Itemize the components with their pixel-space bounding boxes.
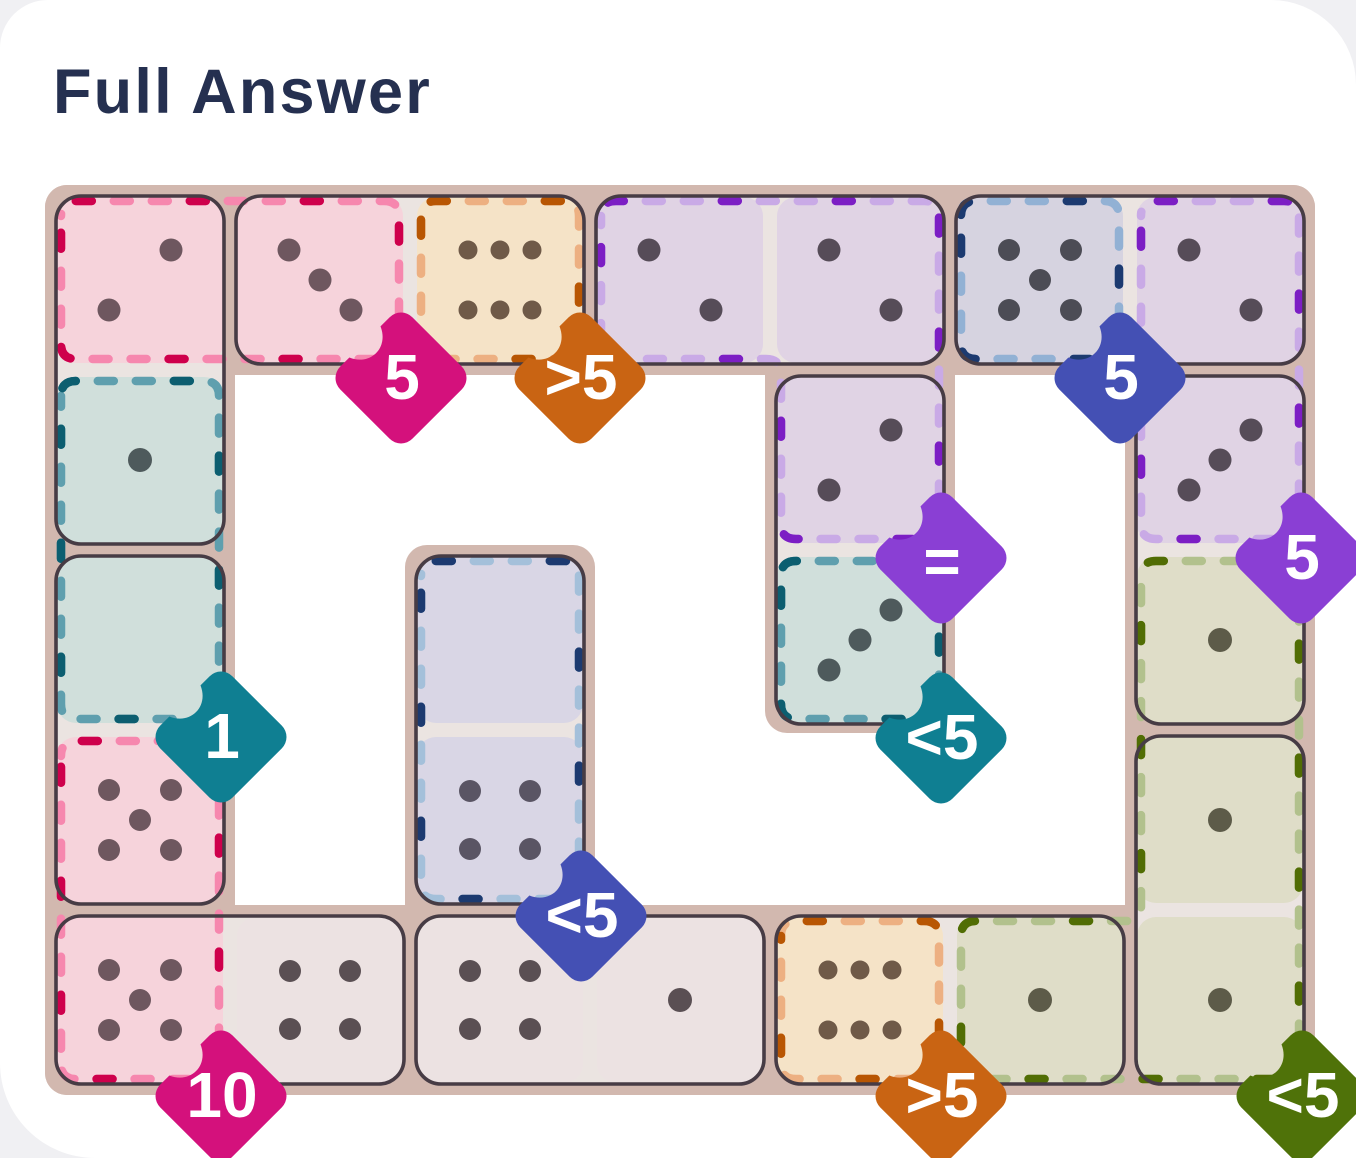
svg-text:<5: <5 bbox=[1267, 1059, 1340, 1131]
svg-text:=: = bbox=[923, 525, 960, 597]
svg-text:5: 5 bbox=[384, 341, 420, 413]
svg-text:1: 1 bbox=[204, 700, 240, 772]
svg-text:<5: <5 bbox=[906, 701, 979, 773]
svg-text:10: 10 bbox=[186, 1059, 257, 1131]
svg-text:>5: >5 bbox=[906, 1059, 979, 1131]
svg-text:>5: >5 bbox=[545, 341, 618, 413]
svg-text:Full Answer: Full Answer bbox=[53, 57, 432, 127]
svg-text:<5: <5 bbox=[546, 879, 619, 951]
svg-text:5: 5 bbox=[1284, 521, 1320, 593]
svg-text:5: 5 bbox=[1103, 341, 1139, 413]
